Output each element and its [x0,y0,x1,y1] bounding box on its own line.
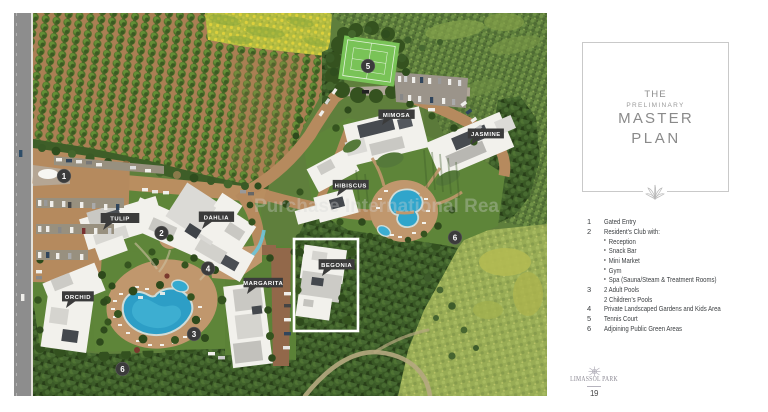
svg-text:6: 6 [453,234,458,243]
svg-text:2: 2 [159,229,164,238]
svg-text:BEGONIA: BEGONIA [321,263,352,269]
svg-text:DAHLIA: DAHLIA [204,215,229,221]
svg-text:5: 5 [366,62,371,71]
svg-text:JASMINE: JASMINE [471,132,501,138]
svg-text:MARGARITA: MARGARITA [243,281,283,287]
svg-text:HIBISCUS: HIBISCUS [335,183,367,189]
svg-text:Purchase International Rea: Purchase International Rea [254,196,499,217]
svg-text:MIMOSA: MIMOSA [383,113,410,119]
svg-text:6: 6 [120,365,125,374]
svg-text:4: 4 [206,265,211,274]
svg-text:3: 3 [192,330,197,339]
svg-text:ORCHID: ORCHID [65,295,91,301]
svg-text:TULIP: TULIP [110,217,130,223]
svg-text:1: 1 [62,172,67,181]
